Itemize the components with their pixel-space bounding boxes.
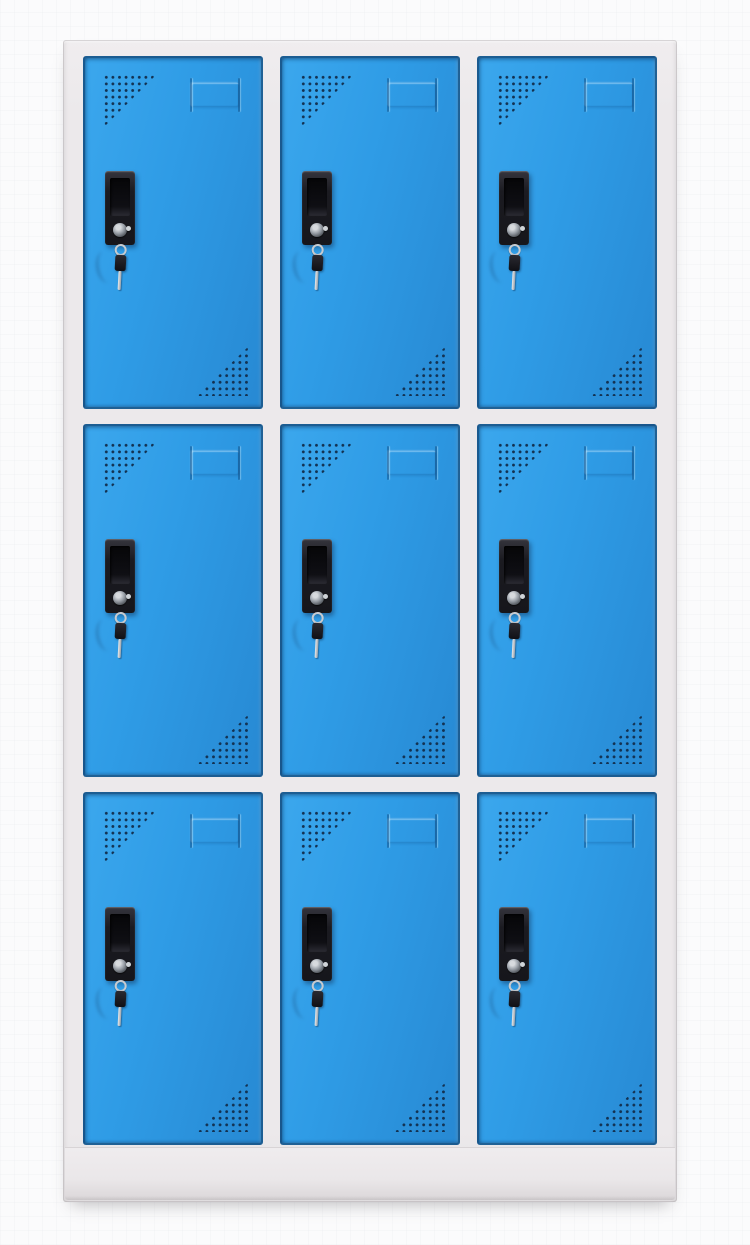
door-handle [499, 907, 529, 981]
door-handle [105, 539, 135, 613]
locker-door-r2-c1 [83, 424, 263, 777]
key-head [508, 991, 520, 1008]
handle-grip-recess [110, 546, 130, 584]
locker-door-r2-c3 [477, 424, 657, 777]
door-handle [105, 907, 135, 981]
locker-door-r3-c2 [280, 792, 460, 1145]
door-handle-unit [105, 907, 141, 1042]
name-card-slot [585, 83, 633, 107]
name-card-slot [585, 451, 633, 475]
vent-perforation-bottom-right [591, 346, 643, 396]
key-in-lock [309, 244, 325, 291]
door-handle-unit [302, 907, 338, 1042]
door-handle [499, 171, 529, 245]
door-handle-unit [499, 171, 535, 306]
door-handle-unit [105, 171, 141, 306]
key-in-lock [309, 980, 325, 1027]
key-shaft [314, 1007, 318, 1026]
vent-perforation-top-left [300, 810, 354, 864]
name-card-slot [191, 451, 239, 475]
key-head [311, 991, 323, 1008]
doors-grid [83, 56, 657, 1146]
door-handle [302, 539, 332, 613]
door-handle [499, 539, 529, 613]
lock-cylinder [113, 959, 127, 973]
name-card-slot [585, 819, 633, 843]
key-in-lock [506, 980, 522, 1027]
lock-cylinder [113, 223, 127, 237]
door-handle [105, 171, 135, 245]
key-head [114, 991, 126, 1008]
key-shaft [117, 1007, 121, 1026]
handle-grip-recess [504, 546, 524, 584]
lock-cylinder [310, 959, 324, 973]
lock-cylinder [310, 223, 324, 237]
vent-perforation-top-left [103, 442, 157, 496]
lock-cylinder [507, 959, 521, 973]
locker-door-r1-c1 [83, 56, 263, 409]
vent-perforation-bottom-right [591, 714, 643, 764]
door-handle-unit [302, 539, 338, 674]
door-handle [302, 907, 332, 981]
locker-door-r3-c3 [477, 792, 657, 1145]
key-in-lock [506, 244, 522, 291]
vent-perforation-bottom-right [394, 714, 446, 764]
door-handle-unit [302, 171, 338, 306]
vent-perforation-bottom-right [591, 1082, 643, 1132]
door-handle-unit [499, 539, 535, 674]
lock-cylinder [507, 591, 521, 605]
locker-product-photo [0, 0, 750, 1245]
key-shaft [314, 271, 318, 290]
locker-door-r1-c2 [280, 56, 460, 409]
vent-perforation-top-left [497, 810, 551, 864]
key-shaft [314, 639, 318, 658]
lock-cylinder [113, 591, 127, 605]
lock-cylinder [507, 223, 521, 237]
vent-perforation-bottom-right [394, 1082, 446, 1132]
key-shaft [117, 271, 121, 290]
name-card-slot [388, 83, 436, 107]
vent-perforation-bottom-right [197, 1082, 249, 1132]
locker-door-r2-c2 [280, 424, 460, 777]
handle-grip-recess [504, 914, 524, 952]
key-shaft [511, 1007, 515, 1026]
handle-grip-recess [307, 178, 327, 216]
locker-door-r3-c1 [83, 792, 263, 1145]
vent-perforation-bottom-right [197, 714, 249, 764]
handle-grip-recess [110, 178, 130, 216]
vent-perforation-bottom-right [394, 346, 446, 396]
key-in-lock [112, 980, 128, 1027]
handle-grip-recess [110, 914, 130, 952]
locker-cabinet [63, 40, 677, 1202]
lock-cylinder [310, 591, 324, 605]
name-card-slot [191, 83, 239, 107]
key-head [311, 255, 323, 272]
key-head [114, 255, 126, 272]
door-handle-unit [105, 539, 141, 674]
cabinet-base-plinth [65, 1147, 675, 1200]
vent-perforation-top-left [103, 810, 157, 864]
key-in-lock [506, 612, 522, 659]
vent-perforation-top-left [103, 74, 157, 128]
door-handle-unit [499, 907, 535, 1042]
door-handle [302, 171, 332, 245]
key-in-lock [112, 244, 128, 291]
name-card-slot [191, 819, 239, 843]
vent-perforation-top-left [300, 74, 354, 128]
name-card-slot [388, 819, 436, 843]
key-head [508, 623, 520, 640]
key-shaft [511, 639, 515, 658]
handle-grip-recess [307, 546, 327, 584]
vent-perforation-top-left [497, 74, 551, 128]
key-shaft [117, 639, 121, 658]
key-in-lock [112, 612, 128, 659]
vent-perforation-top-left [497, 442, 551, 496]
handle-grip-recess [307, 914, 327, 952]
key-head [508, 255, 520, 272]
vent-perforation-bottom-right [197, 346, 249, 396]
key-shaft [511, 271, 515, 290]
key-in-lock [309, 612, 325, 659]
handle-grip-recess [504, 178, 524, 216]
vent-perforation-top-left [300, 442, 354, 496]
key-head [114, 623, 126, 640]
name-card-slot [388, 451, 436, 475]
locker-door-r1-c3 [477, 56, 657, 409]
key-head [311, 623, 323, 640]
